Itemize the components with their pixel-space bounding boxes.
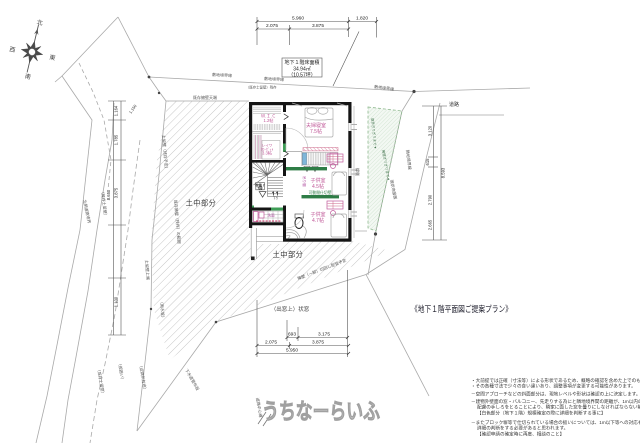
svg-text:8.593: 8.593 <box>441 167 446 178</box>
svg-text:2.665: 2.665 <box>428 219 433 230</box>
svg-text:1.100: 1.100 <box>114 296 119 307</box>
svg-text:1.820: 1.820 <box>356 16 368 22</box>
svg-text:615: 615 <box>425 158 430 166</box>
svg-text:・その各種寸法で少々の食い違いあり、調整事項が変更する可能性: ・その各種寸法で少々の食い違いあり、調整事項が変更する可能性があります。 <box>471 383 636 390</box>
svg-text:（既存土留壁）残存: （既存土留壁）残存 <box>246 85 277 90</box>
svg-text:2.075: 2.075 <box>266 23 278 29</box>
svg-text:縁側: 縁側 <box>355 168 361 176</box>
svg-text:敷地境界線: 敷地境界線 <box>212 71 232 78</box>
svg-text:1.2帖: 1.2帖 <box>263 117 273 124</box>
svg-text:土中部分: 土中部分 <box>186 199 217 208</box>
svg-text:夫婦寝室: 夫婦寝室 <box>306 122 326 129</box>
svg-text:吊り棚: 吊り棚 <box>302 176 307 187</box>
svg-text:693: 693 <box>288 332 296 338</box>
svg-text:道路: 道路 <box>449 101 459 108</box>
svg-text:1.785: 1.785 <box>114 134 119 145</box>
svg-text:3.875: 3.875 <box>312 23 324 29</box>
svg-text:－空間アプローチなどの斜面部分は、現地レベルや形状は確認の上: －空間アプローチなどの斜面部分は、現地レベルや形状は確認の上に決定します。 <box>471 391 640 398</box>
svg-text:可動間仕切壁: 可動間仕切壁 <box>309 190 332 195</box>
svg-text:3.875: 3.875 <box>114 187 119 198</box>
svg-text:5.960: 5.960 <box>292 16 304 22</box>
svg-text:（出窓上）状窓: （出窓上）状窓 <box>271 305 310 313</box>
svg-text:3.875: 3.875 <box>312 340 324 346</box>
svg-text:5.950: 5.950 <box>286 348 298 354</box>
svg-text:4.7帖: 4.7帖 <box>312 217 324 224</box>
svg-text:《地下１階平面図ご提案プラン》: 《地下１階平面図ご提案プラン》 <box>411 304 512 314</box>
svg-text:【確認申請の確定時に再度、相談のこと】: 【確認申請の確定時に再度、相談のこと】 <box>477 431 564 438</box>
svg-text:子供室: 子供室 <box>310 211 325 218</box>
svg-text:2.075: 2.075 <box>265 340 277 346</box>
svg-text:1.164: 1.164 <box>114 105 119 116</box>
svg-text:下り: 下り <box>273 196 279 200</box>
svg-text:うちなーらいふ: うちなーらいふ <box>262 399 380 424</box>
svg-text:【白色部分（地下１階）規模確定の際に詳細を判断する事に】: 【白色部分（地下１階）規模確定の際に詳細を判断する事に】 <box>477 410 606 417</box>
svg-text:（10.57坪）: （10.57坪） <box>288 72 316 79</box>
svg-text:3.3帖: 3.3帖 <box>262 150 272 157</box>
svg-text:子供室: 子供室 <box>310 177 325 184</box>
svg-text:地下１階床面積: 地下１階床面積 <box>284 59 319 66</box>
svg-text:既存擁壁天端: 既存擁壁天端 <box>193 94 217 100</box>
svg-text:配慮の手しろをとることにより、隣家に面した窓を曇りにしなけれ: 配慮の手しろをとることにより、隣家に面した窓を曇りにしなければならない制約があり… <box>477 404 640 411</box>
svg-text:3.175: 3.175 <box>318 332 330 338</box>
svg-text:敷地境界線: 敷地境界線 <box>264 75 284 82</box>
svg-text:34.94㎡: 34.94㎡ <box>293 66 311 73</box>
svg-text:洗面: 洗面 <box>267 213 275 218</box>
svg-text:4.5帖: 4.5帖 <box>312 183 324 190</box>
svg-text:土中部分: 土中部分 <box>273 250 304 259</box>
svg-text:2.790: 2.790 <box>428 194 433 205</box>
svg-text:7段: 7段 <box>257 186 263 191</box>
svg-text:7.5帖: 7.5帖 <box>310 128 322 135</box>
svg-text:3.120: 3.120 <box>428 125 433 136</box>
svg-text:詳細の判断をする必要があると思われます。: 詳細の判断をする必要があると思われます。 <box>477 425 568 432</box>
